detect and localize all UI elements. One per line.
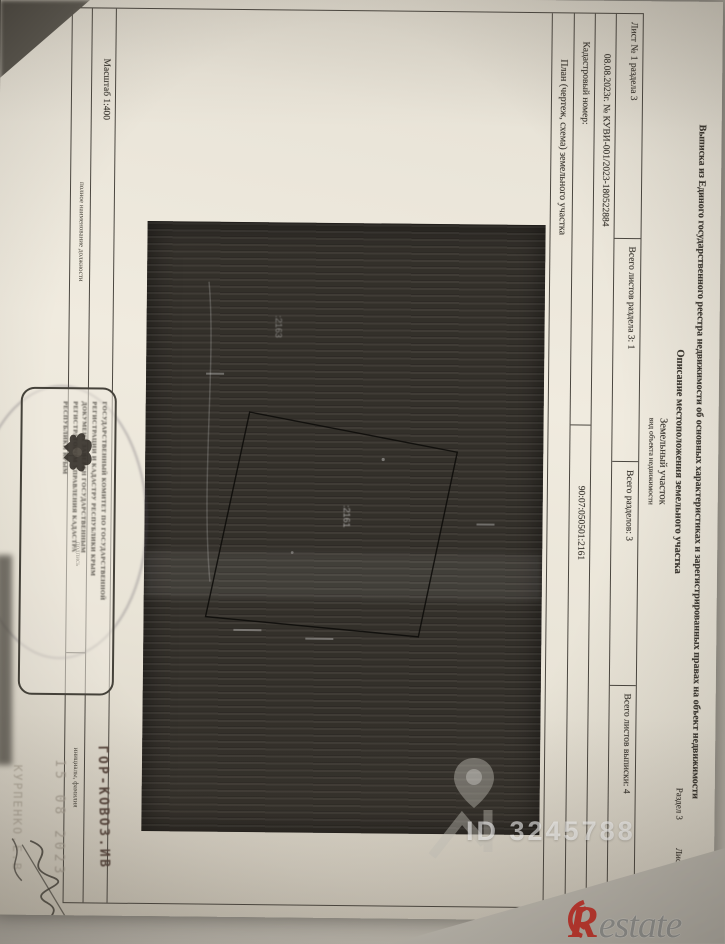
handwritten-signature (0, 832, 96, 922)
sheet-cell: Лист № 1 раздела 3 (615, 14, 643, 238)
total-sections-cell: Всего разделов: 3 (610, 461, 638, 685)
parcel-boundary-drawing (141, 221, 545, 835)
plan-aerial-image: :2161 :2163 (141, 221, 545, 835)
neighbor-parcel-label: :2163 (273, 315, 283, 338)
photo-frame: Выписка из Единого государственного реес… (0, 0, 725, 944)
total-extract-sheets-cell: Всего листов выписки: 4 (608, 684, 636, 908)
header-table: Лист № 1 раздела 3 Всего листов раздела … (63, 7, 644, 909)
parcel-number-label: :2161 (341, 505, 351, 528)
razdel-label: Раздел 3 (674, 788, 684, 820)
restate-swoosh-icon (554, 892, 588, 940)
restate-letters-estate: estate (599, 906, 682, 944)
registrar-facsimile-stamp: ГОР-КОВОЗ.ИВ (95, 745, 112, 869)
total-sheets-cell: Всего листов раздела 3: 1 (612, 237, 640, 461)
official-stamp: ГОСУДАРСТВЕННЫЙ КОМИТЕТ ПО ГОСУДАРСТВЕНН… (18, 387, 117, 696)
restate-watermark-logo: Restate (568, 888, 725, 944)
document-page: Выписка из Единого государственного реес… (0, 0, 723, 922)
watermark-id-text: ID 3245788 (466, 816, 636, 847)
eagle-emblem-icon (58, 429, 94, 475)
background-edge-shadow (0, 555, 12, 765)
document-title: Выписка из Единого государственного реес… (689, 16, 709, 908)
